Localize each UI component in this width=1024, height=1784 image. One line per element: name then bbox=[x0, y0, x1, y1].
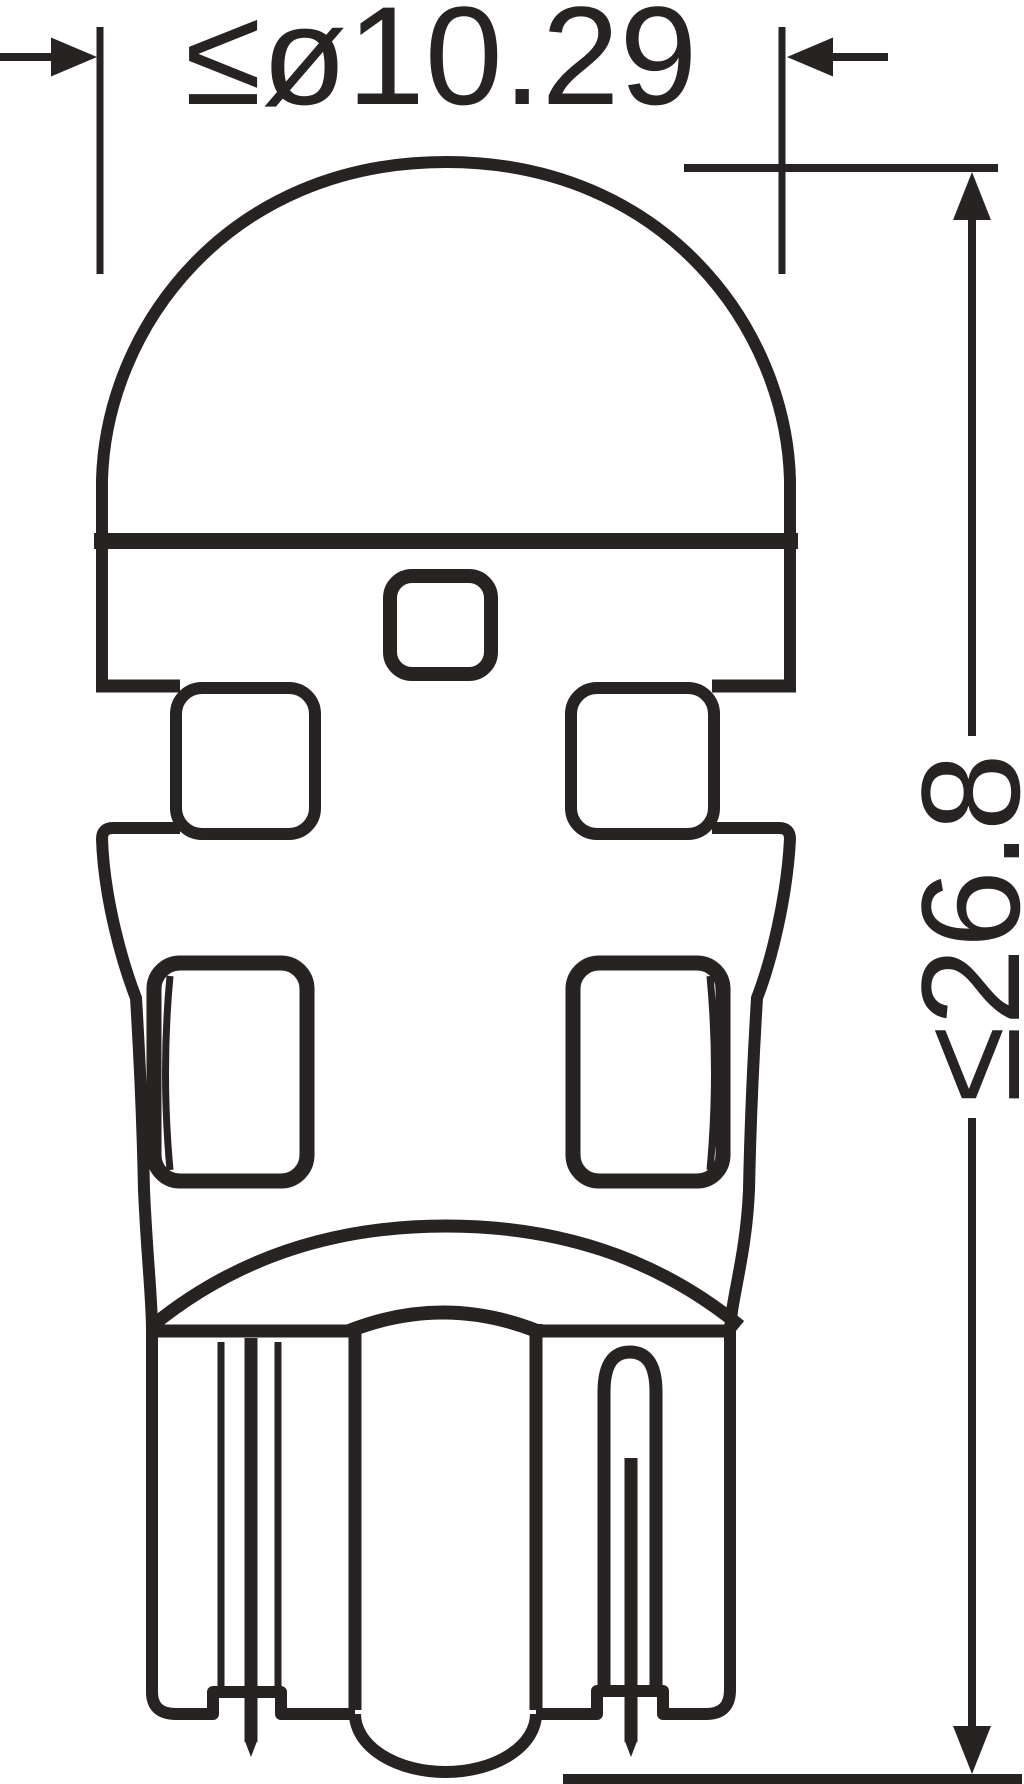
led-chip-left-inner-line bbox=[166, 976, 171, 1170]
bulb-dome-outline bbox=[102, 162, 790, 682]
length-arrowhead-top bbox=[953, 172, 991, 220]
center-window bbox=[390, 576, 491, 674]
diameter-dimension-label: ≤ø10.29 bbox=[185, 0, 698, 134]
led-chip-right bbox=[573, 963, 723, 1181]
led-chip-left bbox=[154, 963, 307, 1181]
diameter-arrowhead-right bbox=[787, 38, 833, 77]
diameter-dimension: ≤ø10.29 bbox=[0, 0, 888, 274]
contact-pin-right-tip bbox=[625, 1740, 638, 1757]
technical-drawing-page: ≤ø10.29 ≤26.8 bbox=[0, 0, 1024, 1784]
side-tab-right bbox=[571, 688, 714, 834]
led-chip-right-inner-line bbox=[710, 976, 715, 1170]
center-bump-arch bbox=[349, 1313, 537, 1332]
length-dimension-label: ≤26.8 bbox=[892, 753, 1024, 1102]
contact-pin-left-tip bbox=[245, 1740, 258, 1757]
led-chips bbox=[154, 963, 723, 1181]
bulb-technical-drawing: ≤ø10.29 ≤26.8 bbox=[0, 0, 1024, 1784]
base-bottom-dimple-arc bbox=[355, 1714, 536, 1772]
side-tab-left bbox=[176, 688, 315, 834]
diameter-arrowhead-left bbox=[51, 38, 97, 77]
length-arrowhead-bottom bbox=[953, 1726, 991, 1774]
